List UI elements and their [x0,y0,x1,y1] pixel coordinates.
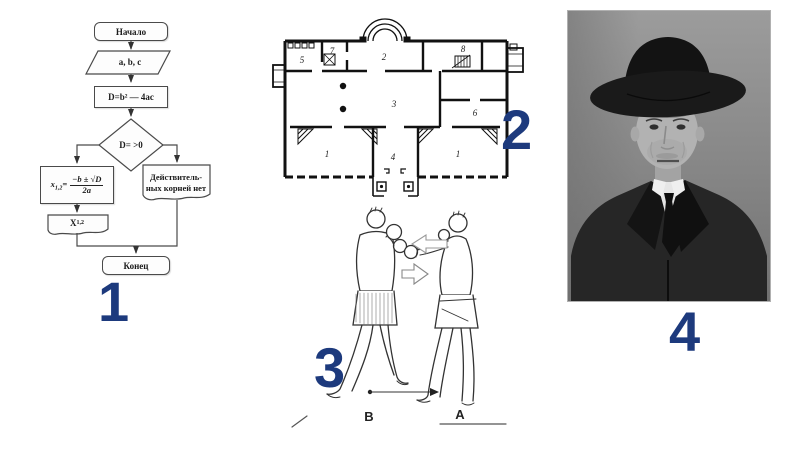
room-label-8: 8 [461,44,466,54]
figure-number-1: 1 [98,274,129,330]
right-porch [507,48,523,72]
room-label-5: 5 [300,55,305,65]
room-label-1a: 1 [325,149,330,159]
flowchart-formula-box: x1,2= −b ± √D 2a [40,166,114,204]
figure-number-3: 3 [314,340,345,396]
stair-symbol [452,55,470,68]
flowchart-process-label: D=b² — 4ac [108,92,154,102]
flowchart-end-label: Конец [124,261,149,271]
flowchart-no-roots-label: Действитель- ных корней нет [144,168,208,198]
flowchart-figure: Начало a, b, c D=b² — 4ac D= >0 x1,2= −b… [38,18,218,280]
room-label-6: 6 [473,108,478,118]
ear-left [631,127,640,142]
portrait-photo [567,10,771,302]
flowchart-start-box: Начало [94,22,168,41]
flowchart-decision-label: D= >0 [101,138,161,152]
arrow-right-outline [402,264,428,284]
bottom-porch [373,169,418,196]
floor-plan-figure: 5 7 2 8 3 6 1 4 1 [272,8,528,204]
floor-tick [292,416,307,427]
corner-stoves [298,129,497,144]
ear-right [696,127,705,142]
figure-number-4: 4 [669,304,700,360]
formula-lhs: x1,2= [51,179,68,192]
slide: Начало a, b, c D=b² — 4ac D= >0 x1,2= −b… [0,0,800,450]
boxer-right-label: A [455,407,465,422]
boxing-figure: B A [290,203,520,438]
room-label-2: 2 [382,52,387,62]
flowchart-input-label: a, b, c [96,54,164,70]
room-label-3: 3 [391,99,397,109]
formula-fraction: −b ± √D 2a [70,175,103,196]
room-label-1b: 1 [456,149,461,159]
flowchart-output-label: X1,2 [50,216,104,230]
figure-number-2: 2 [501,102,532,158]
room-label-7: 7 [330,46,335,56]
flowchart-start-label: Начало [116,27,146,37]
left-porch [273,65,285,87]
flowchart-process-box: D=b² — 4ac [94,86,168,108]
room-label-4: 4 [391,152,396,162]
boxer-left-label: B [364,409,373,424]
